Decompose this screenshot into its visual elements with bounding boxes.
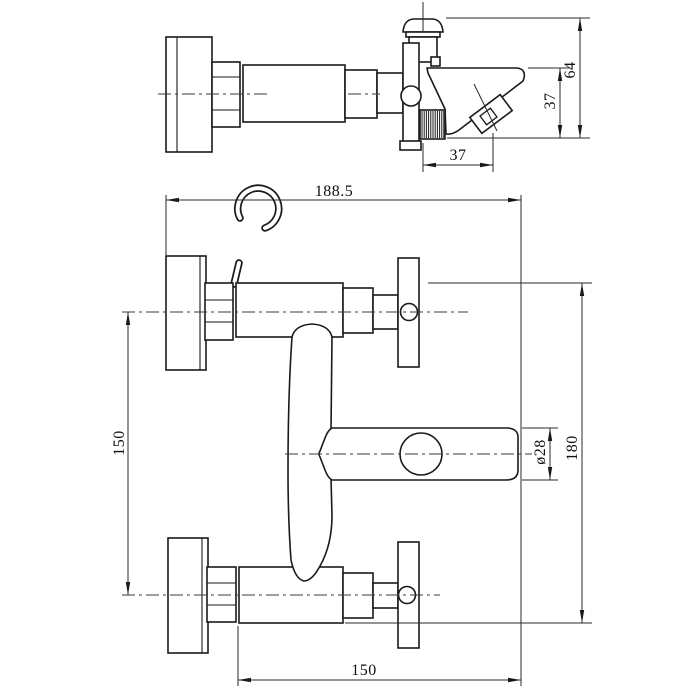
- bath-mixer-technical-drawing: 64 37 37 188.5: [0, 0, 700, 700]
- valve-neck: [377, 73, 403, 113]
- diverter-knob-foot: [431, 57, 440, 66]
- dim-text-64: 64: [562, 62, 579, 79]
- front-view: [122, 188, 532, 653]
- arrowhead: [238, 678, 251, 682]
- dim-text-150-bottom: 150: [351, 662, 377, 679]
- valve-body-step: [343, 288, 373, 333]
- arrowhead: [480, 163, 493, 167]
- technical-drawing-canvas: 64 37 37 188.5: [0, 0, 700, 700]
- handle-end-cap: [400, 141, 421, 150]
- dim-text-37h: 37: [450, 147, 467, 164]
- arrowhead: [580, 610, 584, 623]
- dim-text-dia28: ø28: [532, 439, 549, 465]
- cross-handle-side: [400, 43, 421, 150]
- arrowhead: [508, 678, 521, 682]
- arrowhead: [126, 582, 130, 595]
- arrowhead: [558, 125, 562, 138]
- arrowhead: [508, 198, 521, 202]
- dim-text-188-5: 188.5: [315, 183, 354, 200]
- dim-text-180: 180: [564, 435, 581, 461]
- handle-hub-circle: [401, 86, 421, 106]
- arrowhead: [578, 18, 582, 31]
- top-view: [158, 19, 524, 152]
- dim-front-inlet-spacing: 150: [111, 312, 130, 595]
- arrowhead: [548, 428, 552, 441]
- shower-outlet-thread: [420, 110, 445, 139]
- arrowhead: [126, 312, 130, 325]
- shower-hook: [234, 188, 279, 284]
- arrowhead: [423, 163, 436, 167]
- arrowhead: [548, 467, 552, 480]
- arrowhead: [578, 125, 582, 138]
- dim-front-spout-reach: 150: [238, 626, 521, 686]
- arrowhead: [166, 198, 179, 202]
- dim-text-37v: 37: [542, 93, 559, 110]
- dim-text-150-left: 150: [111, 430, 128, 456]
- arrowhead: [580, 283, 584, 296]
